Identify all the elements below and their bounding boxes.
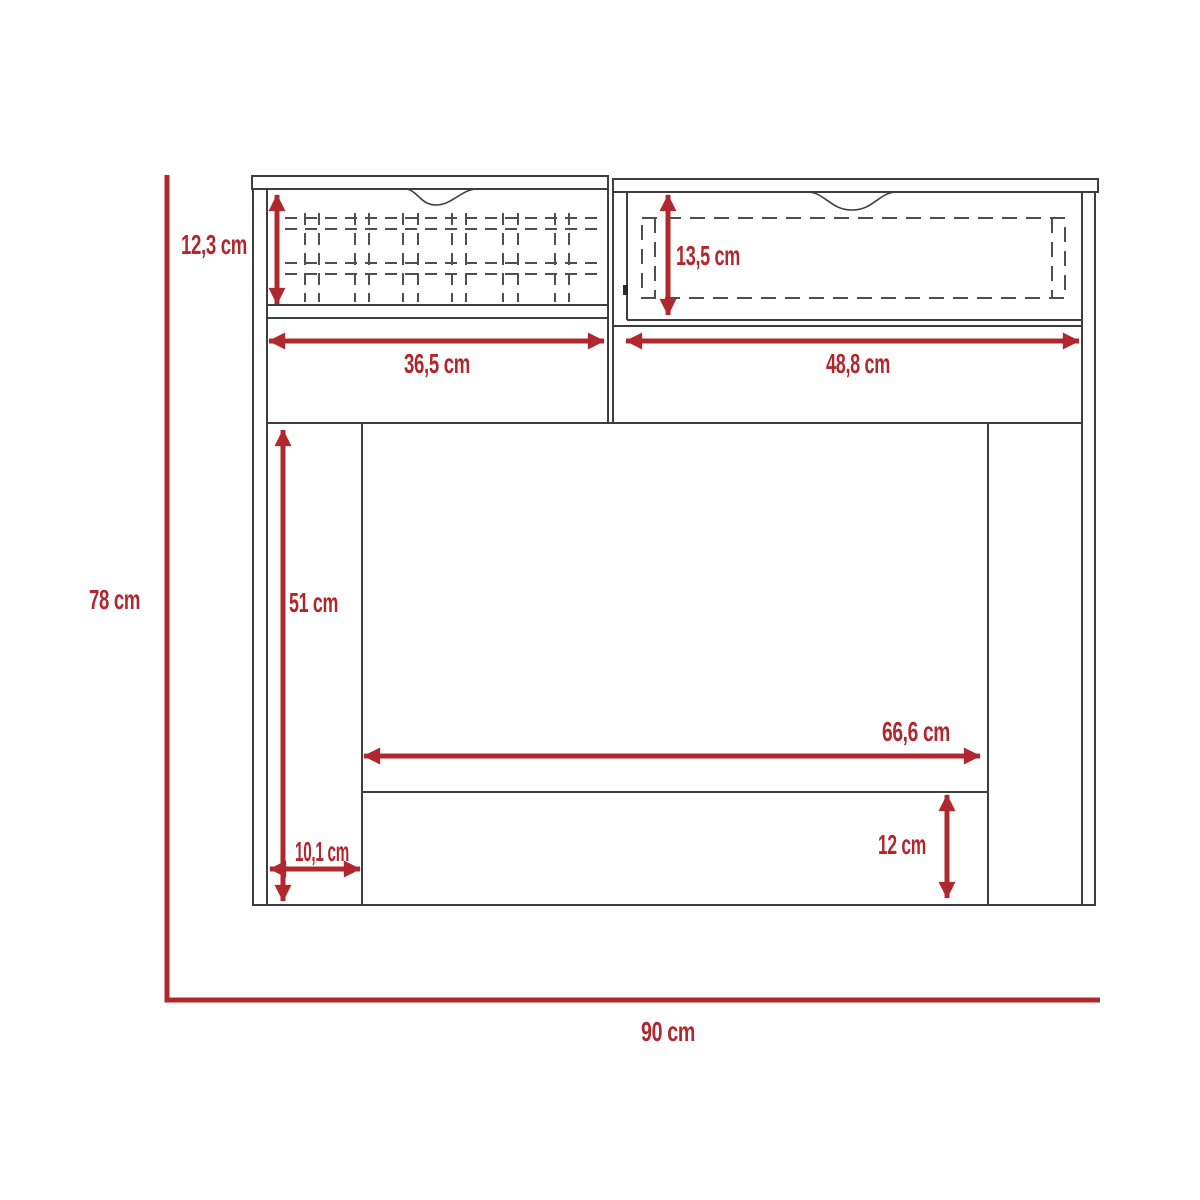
right-drawer-height-label: 13,5 cm xyxy=(676,240,740,271)
left-drawer-handle-notch xyxy=(405,189,477,205)
knee-space-height-label: 51 cm xyxy=(289,587,338,618)
left-tabletop xyxy=(252,176,608,189)
dimension-labels: 12,3 cm 13,5 cm 36,5 cm 48,8 cm 51 cm 66… xyxy=(89,229,950,1047)
desk-dimension-diagram: 12,3 cm 13,5 cm 36,5 cm 48,8 cm 51 cm 66… xyxy=(0,0,1200,1200)
overall-width-label: 90 cm xyxy=(641,1016,695,1047)
drawer-slide-mark xyxy=(623,285,628,295)
dimension-diagram-page: 12,3 cm 13,5 cm 36,5 cm 48,8 cm 51 cm 66… xyxy=(0,0,1200,1200)
left-drawer-height-label: 12,3 cm xyxy=(181,229,247,260)
right-drawer-handle-notch xyxy=(807,192,897,210)
side-panel-width-label: 10,1 cm xyxy=(295,836,349,867)
right-tabletop xyxy=(613,179,1098,192)
overall-height-label: 78 cm xyxy=(89,584,140,615)
dimension-arrows xyxy=(269,195,1079,901)
knee-space-width-label: 66,6 cm xyxy=(882,716,950,747)
left-drawer-width-label: 36,5 cm xyxy=(404,348,470,379)
desk-outline xyxy=(252,176,1098,905)
left-drawer-organizer-grid xyxy=(285,213,601,302)
stretcher-height-label: 12 cm xyxy=(878,829,926,860)
right-drawer-width-label: 48,8 cm xyxy=(826,348,890,379)
